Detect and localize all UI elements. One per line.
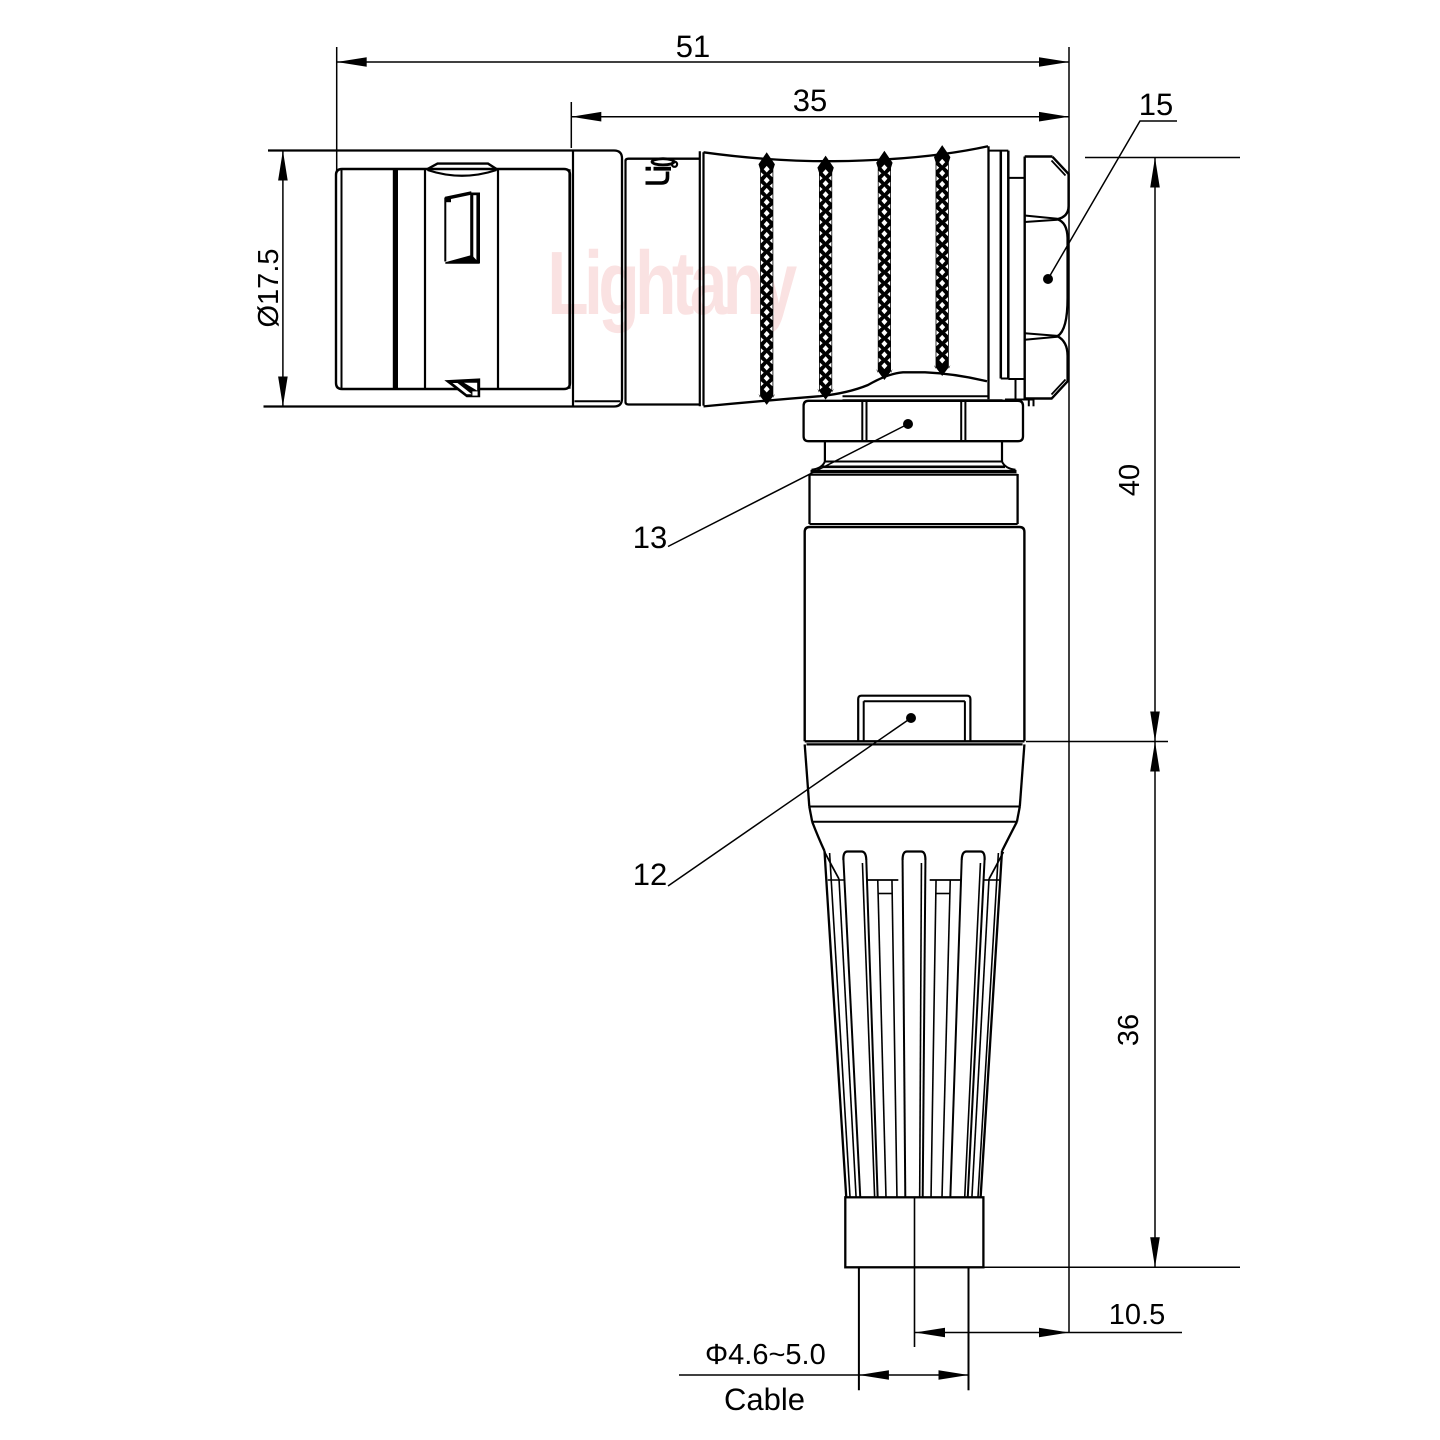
svg-text:36: 36 bbox=[1113, 1014, 1145, 1046]
svg-text:Φ4.6~5.0: Φ4.6~5.0 bbox=[705, 1339, 826, 1371]
svg-text:40: 40 bbox=[1114, 464, 1146, 496]
svg-text:15: 15 bbox=[1139, 87, 1173, 122]
svg-text:12: 12 bbox=[633, 857, 667, 892]
svg-text:35: 35 bbox=[793, 83, 827, 118]
svg-text:51: 51 bbox=[676, 29, 710, 64]
svg-text:Lightany: Lightany bbox=[547, 234, 797, 334]
svg-text:10.5: 10.5 bbox=[1109, 1299, 1165, 1331]
svg-text:Cable: Cable bbox=[724, 1382, 805, 1417]
svg-text:13: 13 bbox=[633, 520, 667, 555]
svg-text:Ø17.5: Ø17.5 bbox=[253, 249, 285, 328]
